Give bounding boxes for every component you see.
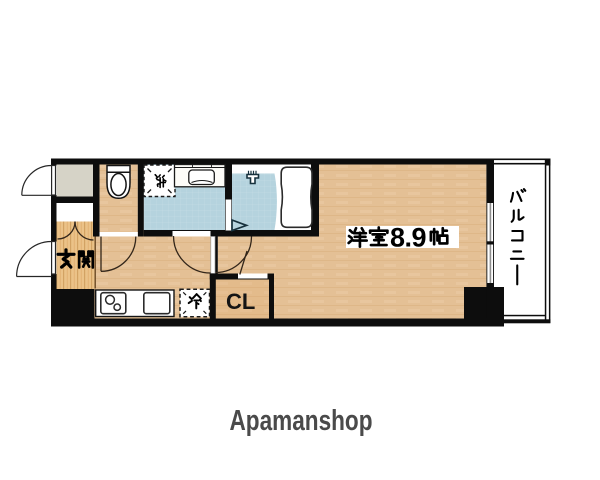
svg-text:CL: CL: [226, 289, 255, 314]
svg-text:8.9: 8.9: [390, 223, 427, 253]
svg-text:Apamanshop: Apamanshop: [230, 405, 373, 437]
